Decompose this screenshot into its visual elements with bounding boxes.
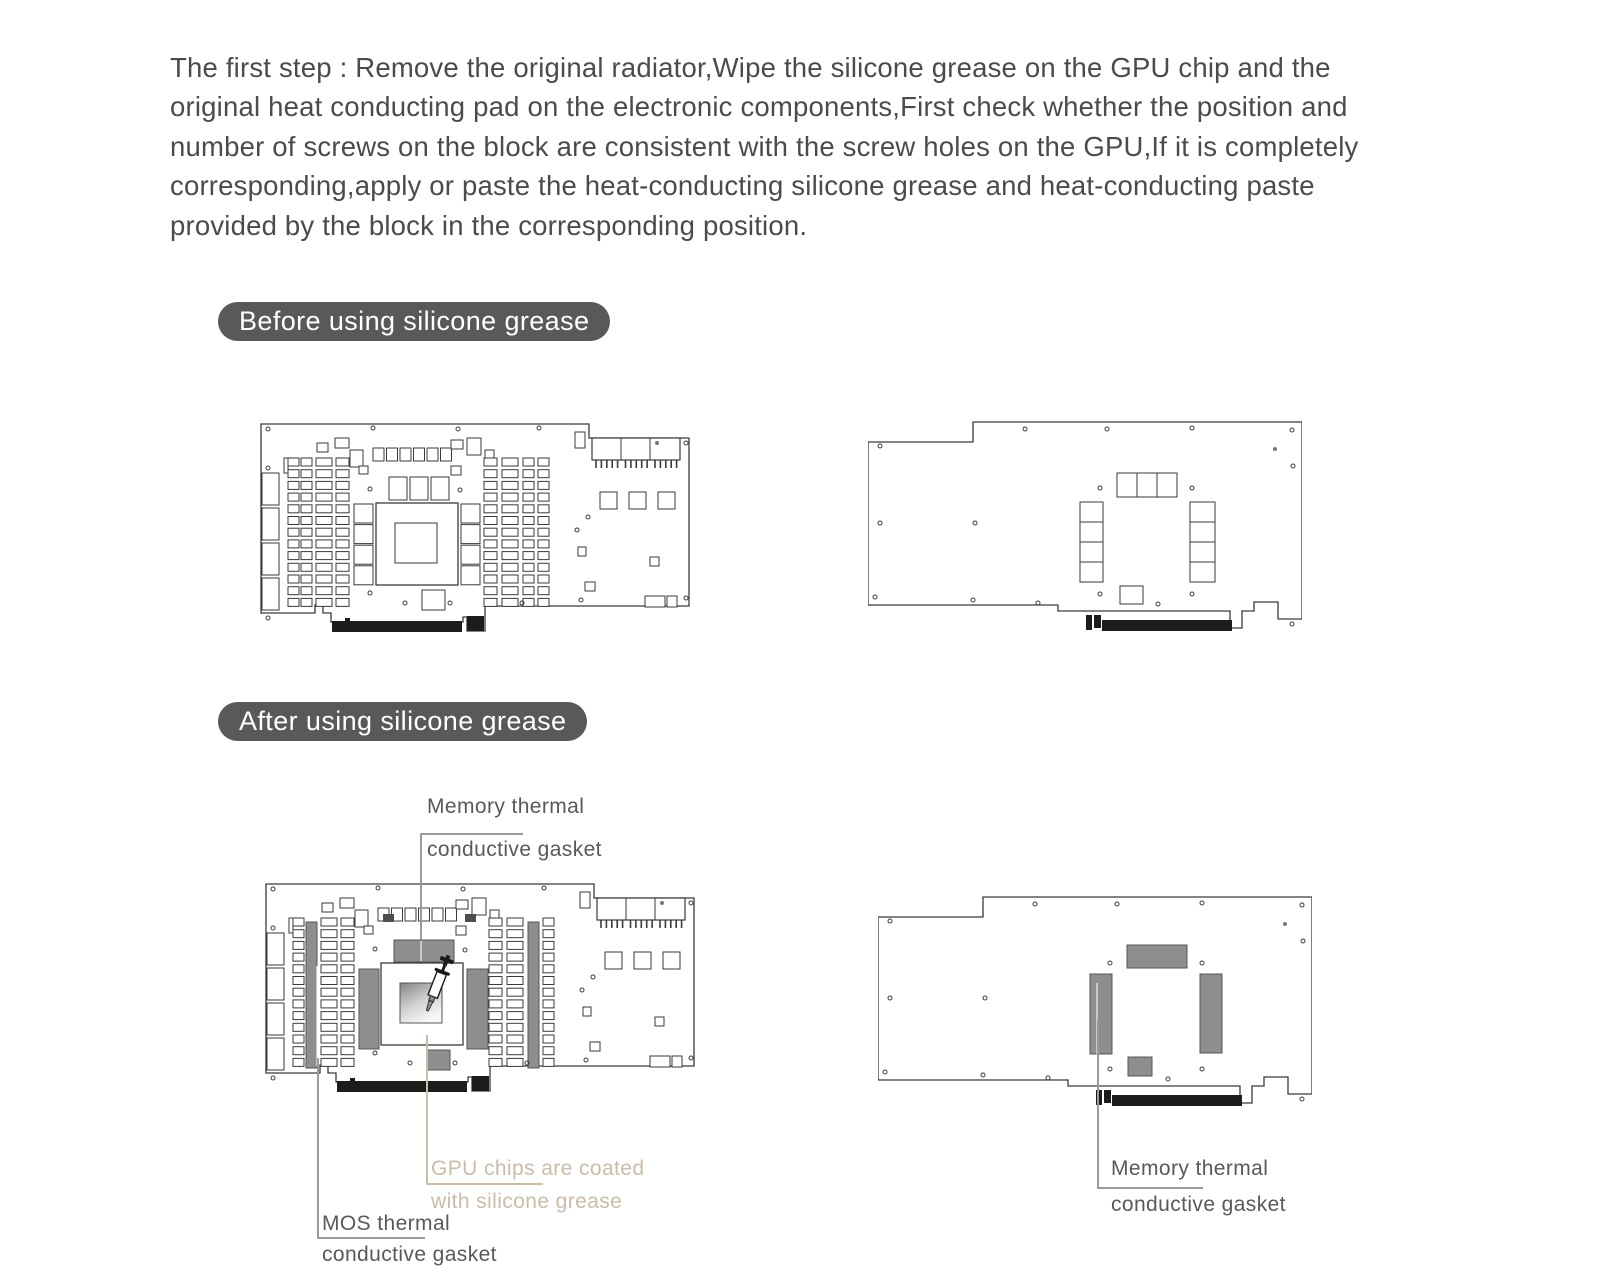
- capacitor: [316, 575, 332, 583]
- memory-chip: [461, 525, 480, 544]
- capacitor: [321, 1058, 337, 1066]
- annotation-memory-top-line2: conductive gasket: [427, 837, 602, 863]
- capacitor: [507, 977, 523, 985]
- capacitor: [341, 1000, 354, 1008]
- capacitor: [336, 517, 349, 525]
- chip: [634, 952, 651, 969]
- capacitor: [502, 493, 518, 501]
- memory-thermal-pad: [359, 969, 379, 1049]
- capacitor: [341, 1058, 354, 1066]
- chip: [600, 492, 617, 509]
- capacitor: [507, 1058, 523, 1066]
- capacitor: [543, 1012, 554, 1020]
- capacitor: [336, 470, 349, 478]
- capacitor: [502, 505, 518, 513]
- capacitor: [484, 493, 497, 501]
- capacitor: [293, 1000, 304, 1008]
- io-connector: [262, 543, 279, 575]
- mos-thermal-pad: [528, 922, 539, 1068]
- capacitor: [523, 598, 534, 606]
- capacitor: [321, 988, 337, 996]
- capacitor: [538, 575, 549, 583]
- capacitor: [502, 575, 518, 583]
- section-badge-before: Before using silicone grease: [218, 302, 610, 341]
- capacitor: [301, 563, 312, 571]
- capacitor: [293, 1058, 304, 1066]
- diagram-pcb-front-after: [260, 870, 700, 1103]
- annotation-gpu-line2: with silicone grease: [431, 1189, 622, 1215]
- pcie-connector: [332, 621, 462, 632]
- capacitor: [288, 481, 299, 489]
- capacitor: [316, 552, 332, 560]
- capacitor: [543, 965, 554, 973]
- capacitor: [507, 988, 523, 996]
- capacitor: [336, 493, 349, 501]
- capacitor: [507, 941, 523, 949]
- leader-line: [1097, 1020, 1099, 1187]
- capacitor: [502, 517, 518, 525]
- io-connector: [262, 578, 279, 610]
- diagram-backplate-before: [868, 413, 1302, 633]
- capacitor: [489, 1047, 502, 1055]
- capacitor: [288, 470, 299, 478]
- capacitor: [316, 540, 332, 548]
- pcie-connector: [1102, 620, 1232, 631]
- capacitor: [316, 598, 332, 606]
- inductor: [446, 908, 457, 921]
- capacitor: [288, 517, 299, 525]
- capacitor: [523, 575, 534, 583]
- power-connector: [597, 898, 685, 920]
- capacitor: [523, 517, 534, 525]
- leader-underline: [420, 833, 523, 835]
- screw-hole: [1290, 622, 1294, 626]
- memory-chip: [354, 566, 373, 585]
- capacitor: [316, 505, 332, 513]
- instruction-text: The first step : Remove the original rad…: [170, 48, 1368, 246]
- section-badge-after: After using silicone grease: [218, 702, 587, 741]
- inductor: [405, 908, 416, 921]
- diagram-pcb-front-before: [255, 410, 695, 643]
- capacitor: [538, 552, 549, 560]
- capacitor: [484, 563, 497, 571]
- capacitor: [489, 941, 502, 949]
- capacitor: [489, 1023, 502, 1031]
- capacitor: [484, 505, 497, 513]
- capacitor: [523, 552, 534, 560]
- capacitor: [301, 528, 312, 536]
- mos-thermal-pad: [306, 922, 317, 1068]
- annotation-memory-top-line1: Memory thermal: [427, 794, 584, 820]
- capacitor: [316, 587, 332, 595]
- io-connector: [262, 508, 279, 540]
- capacitor: [502, 528, 518, 536]
- leader-underline: [1097, 1187, 1203, 1189]
- annotation-mos-line2: conductive gasket: [322, 1242, 497, 1268]
- capacitor: [507, 1012, 523, 1020]
- capacitor: [543, 918, 554, 926]
- diagram-backplate-after: [878, 888, 1312, 1108]
- io-connector: [267, 933, 284, 965]
- capacitor: [484, 470, 497, 478]
- capacitor: [489, 988, 502, 996]
- capacitor: [336, 528, 349, 536]
- screw-hole: [271, 1076, 275, 1080]
- capacitor: [316, 528, 332, 536]
- capacitor: [288, 528, 299, 536]
- chip: [658, 492, 675, 509]
- capacitor: [484, 552, 497, 560]
- capacitor: [301, 598, 312, 606]
- capacitor: [543, 988, 554, 996]
- leader-line: [420, 833, 422, 940]
- capacitor: [538, 470, 549, 478]
- capacitor: [484, 517, 497, 525]
- capacitor: [543, 1023, 554, 1031]
- capacitor: [336, 575, 349, 583]
- capacitor: [502, 552, 518, 560]
- capacitor: [336, 458, 349, 466]
- capacitor: [321, 1000, 337, 1008]
- capacitor: [301, 540, 312, 548]
- capacitor: [288, 540, 299, 548]
- capacitor: [321, 1012, 337, 1020]
- capacitor: [543, 953, 554, 961]
- manual-page: The first step : Remove the original rad…: [0, 0, 1600, 1280]
- capacitor: [301, 517, 312, 525]
- inductor: [373, 448, 384, 461]
- pcie-connector: [1112, 1095, 1242, 1106]
- inductor: [387, 448, 398, 461]
- capacitor: [301, 470, 312, 478]
- gpu-die: [395, 523, 437, 563]
- capacitor: [502, 598, 518, 606]
- capacitor: [316, 481, 332, 489]
- capacitor: [484, 458, 497, 466]
- memory-pad-area: [1117, 473, 1177, 497]
- capacitor: [543, 1000, 554, 1008]
- annotation-memory-back-line1: Memory thermal: [1111, 1156, 1268, 1182]
- capacitor: [293, 988, 304, 996]
- capacitor: [293, 1023, 304, 1031]
- capacitor: [538, 505, 549, 513]
- leader-line: [317, 1058, 319, 1237]
- capacitor: [538, 493, 549, 501]
- memory-chip: [354, 525, 373, 544]
- capacitor: [321, 1035, 337, 1043]
- capacitor: [336, 587, 349, 595]
- capacitor: [321, 965, 337, 973]
- capacitor: [489, 930, 502, 938]
- capacitor: [288, 587, 299, 595]
- capacitor: [507, 930, 523, 938]
- io-connector: [267, 968, 284, 1000]
- capacitor: [523, 563, 534, 571]
- io-connector: [262, 473, 279, 505]
- inductor: [432, 908, 443, 921]
- pcie-notch-key: [472, 1076, 489, 1091]
- capacitor: [336, 598, 349, 606]
- capacitor: [538, 598, 549, 606]
- chip: [629, 492, 646, 509]
- leader-underline: [426, 1183, 543, 1185]
- memory-chip: [410, 477, 428, 500]
- capacitor: [301, 575, 312, 583]
- capacitor: [288, 563, 299, 571]
- power-connector: [592, 438, 680, 460]
- io-connector: [267, 1038, 284, 1070]
- capacitor: [341, 930, 354, 938]
- capacitor: [321, 941, 337, 949]
- memory-chip: [354, 545, 373, 564]
- capacitor: [336, 540, 349, 548]
- capacitor: [293, 977, 304, 985]
- capacitor: [538, 587, 549, 595]
- memory-chip: [354, 504, 373, 523]
- capacitor: [288, 552, 299, 560]
- capacitor: [341, 941, 354, 949]
- capacitor: [538, 517, 549, 525]
- capacitor: [489, 953, 502, 961]
- annotation-mos-line1: MOS thermal: [322, 1211, 450, 1237]
- capacitor: [293, 965, 304, 973]
- capacitor: [316, 563, 332, 571]
- memory-thermal-pad: [1090, 974, 1112, 1054]
- chip: [663, 952, 680, 969]
- capacitor: [543, 977, 554, 985]
- capacitor: [288, 505, 299, 513]
- capacitor: [538, 481, 549, 489]
- capacitor: [341, 988, 354, 996]
- capacitor: [301, 505, 312, 513]
- capacitor: [341, 977, 354, 985]
- capacitor: [288, 493, 299, 501]
- capacitor: [316, 517, 332, 525]
- capacitor: [489, 1058, 502, 1066]
- capacitor: [502, 481, 518, 489]
- capacitor: [288, 598, 299, 606]
- capacitor: [484, 540, 497, 548]
- memory-thermal-pad: [1127, 945, 1187, 968]
- capacitor: [316, 458, 332, 466]
- capacitor: [336, 563, 349, 571]
- capacitor: [341, 918, 354, 926]
- capacitor: [543, 941, 554, 949]
- capacitor: [523, 458, 534, 466]
- capacitor: [484, 598, 497, 606]
- capacitor: [301, 552, 312, 560]
- capacitor: [489, 918, 502, 926]
- capacitor: [293, 953, 304, 961]
- capacitor: [538, 563, 549, 571]
- capacitor: [489, 1012, 502, 1020]
- capacitor: [301, 493, 312, 501]
- capacitor: [543, 930, 554, 938]
- inductor: [414, 448, 425, 461]
- capacitor: [507, 918, 523, 926]
- leader-underline: [317, 1237, 425, 1239]
- chip: [605, 952, 622, 969]
- memory-chip: [461, 566, 480, 585]
- capacitor: [341, 1023, 354, 1031]
- capacitor: [321, 930, 337, 938]
- capacitor: [336, 552, 349, 560]
- capacitor: [321, 1047, 337, 1055]
- capacitor: [489, 1000, 502, 1008]
- capacitor: [484, 481, 497, 489]
- capacitor: [543, 1047, 554, 1055]
- capacitor: [341, 1047, 354, 1055]
- capacitor: [321, 1023, 337, 1031]
- thermal-pad: [427, 1050, 450, 1070]
- capacitor: [538, 528, 549, 536]
- capacitor: [293, 1012, 304, 1020]
- inductor: [441, 448, 452, 461]
- capacitor: [316, 493, 332, 501]
- capacitor: [484, 587, 497, 595]
- capacitor: [321, 953, 337, 961]
- capacitor: [523, 540, 534, 548]
- capacitor: [507, 1035, 523, 1043]
- annotation-memory-back-line2: conductive gasket: [1111, 1192, 1286, 1218]
- capacitor: [502, 458, 518, 466]
- capacitor: [489, 1035, 502, 1043]
- capacitor: [336, 481, 349, 489]
- memory-chip: [431, 477, 449, 500]
- capacitor: [301, 587, 312, 595]
- annotation-gpu-line1: GPU chips are coated: [431, 1156, 644, 1182]
- capacitor: [523, 505, 534, 513]
- capacitor: [293, 1047, 304, 1055]
- capacitor: [321, 918, 337, 926]
- capacitor: [293, 1035, 304, 1043]
- screw-hole: [1300, 1097, 1304, 1101]
- capacitor: [293, 941, 304, 949]
- capacitor: [288, 575, 299, 583]
- capacitor: [341, 1012, 354, 1020]
- capacitor: [543, 1058, 554, 1066]
- capacitor: [301, 458, 312, 466]
- inductor: [400, 448, 411, 461]
- capacitor: [341, 953, 354, 961]
- memory-chip: [461, 504, 480, 523]
- capacitor: [293, 918, 304, 926]
- capacitor: [484, 575, 497, 583]
- capacitor: [543, 1035, 554, 1043]
- capacitor: [288, 458, 299, 466]
- leader-line: [426, 1035, 428, 1183]
- capacitor: [489, 965, 502, 973]
- pcie-connector: [337, 1081, 467, 1092]
- memory-thermal-pad: [1200, 974, 1222, 1053]
- capacitor: [523, 587, 534, 595]
- capacitor: [507, 965, 523, 973]
- memory-thermal-pad: [467, 969, 488, 1049]
- capacitor: [538, 458, 549, 466]
- capacitor: [321, 977, 337, 985]
- capacitor: [523, 481, 534, 489]
- capacitor: [341, 1035, 354, 1043]
- capacitor: [316, 470, 332, 478]
- capacitor: [502, 563, 518, 571]
- capacitor: [523, 493, 534, 501]
- capacitor: [507, 1023, 523, 1031]
- capacitor: [502, 540, 518, 548]
- capacitor: [507, 1000, 523, 1008]
- capacitor: [523, 528, 534, 536]
- capacitor: [484, 528, 497, 536]
- capacitor: [502, 587, 518, 595]
- io-connector: [267, 1003, 284, 1035]
- capacitor: [538, 540, 549, 548]
- capacitor: [507, 1047, 523, 1055]
- memory-chip: [461, 545, 480, 564]
- capacitor: [502, 470, 518, 478]
- capacitor: [301, 481, 312, 489]
- capacitor: [293, 930, 304, 938]
- capacitor: [507, 953, 523, 961]
- capacitor: [341, 965, 354, 973]
- capacitor: [489, 977, 502, 985]
- pcie-notch-key: [467, 616, 484, 631]
- thermal-pad: [1128, 1057, 1152, 1076]
- inductor: [427, 448, 438, 461]
- screw-hole: [266, 616, 270, 620]
- memory-chip: [389, 477, 407, 500]
- capacitor: [523, 470, 534, 478]
- capacitor: [336, 505, 349, 513]
